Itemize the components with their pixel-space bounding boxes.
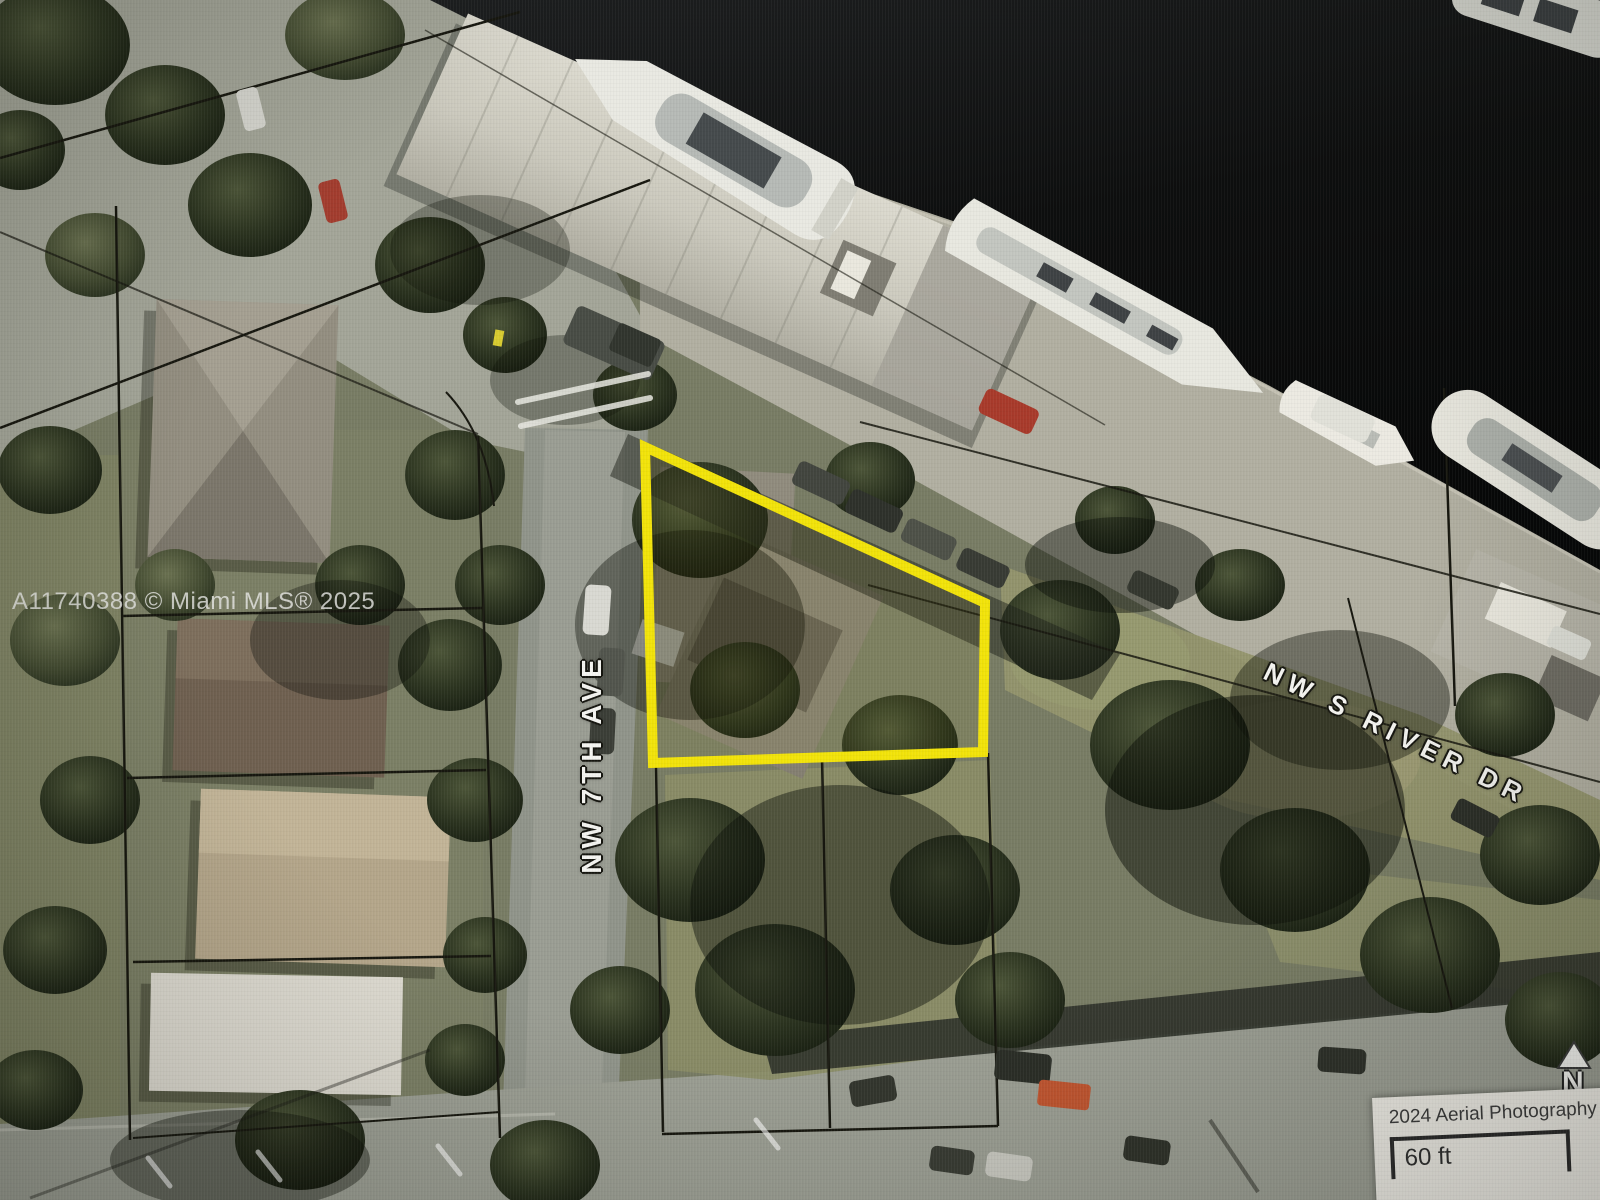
scale-box: 2024 Aerial Photography 60 ft xyxy=(1372,1085,1600,1200)
aerial-map: A11740388 © Miami MLS® 2025 NW 7TH AVE N… xyxy=(0,0,1600,1200)
scale-distance-label: 60 ft xyxy=(1404,1138,1567,1173)
mls-watermark: A11740388 © Miami MLS® 2025 xyxy=(12,588,375,616)
street-label-nw-7th-ave: NW 7TH AVE xyxy=(576,654,608,874)
scale-bar: 60 ft xyxy=(1390,1129,1572,1179)
scale-title: 2024 Aerial Photography xyxy=(1388,1095,1600,1129)
